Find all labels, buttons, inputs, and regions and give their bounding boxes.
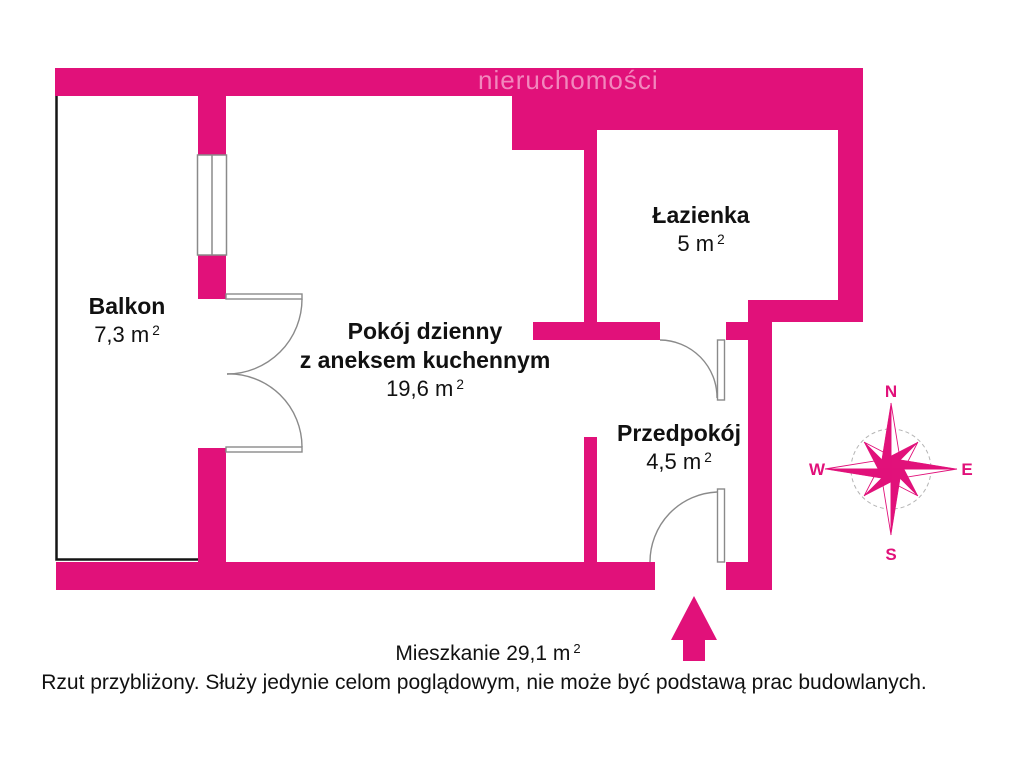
- room-area: 19,6 m2: [288, 375, 562, 403]
- watermark: nieruchomości: [478, 65, 659, 96]
- room-name-line2: z aneksem kuchennym: [288, 346, 562, 375]
- room-label-balkon: Balkon 7,3 m2: [57, 292, 197, 348]
- room-label-przedpokoj: Przedpokój 4,5 m2: [600, 419, 758, 475]
- footer-disclaimer: Rzut przybliżony. Służy jedynie celom po…: [0, 671, 968, 695]
- footer-summary: Mieszkanie 29,1 m2: [0, 641, 976, 666]
- room-area: 4,5 m2: [600, 448, 758, 476]
- compass-label-s: S: [885, 545, 896, 564]
- room-name: Balkon: [57, 292, 197, 321]
- room-label-lazienka: Łazienka 5 m2: [618, 201, 784, 257]
- entrance-door: [650, 489, 725, 562]
- room-area: 5 m2: [618, 230, 784, 258]
- room-name: Łazienka: [618, 201, 784, 230]
- compass-label-w: W: [809, 460, 826, 479]
- room-area: 7,3 m2: [57, 321, 197, 349]
- room-name: Przedpokój: [600, 419, 758, 448]
- compass-star-dark: [825, 403, 957, 535]
- bathroom-door: [660, 340, 725, 400]
- compass-rose: N E S W: [809, 382, 973, 564]
- compass-label-n: N: [885, 382, 897, 401]
- compass-label-e: E: [961, 460, 972, 479]
- balcony-window: [198, 155, 227, 255]
- room-label-pokoj: Pokój dzienny z aneksem kuchennym 19,6 m…: [288, 317, 562, 402]
- room-name: Pokój dzienny: [288, 317, 562, 346]
- floor-plan: N E S W nieruchomości Balkon 7,3 m2 Pokó…: [0, 0, 1024, 768]
